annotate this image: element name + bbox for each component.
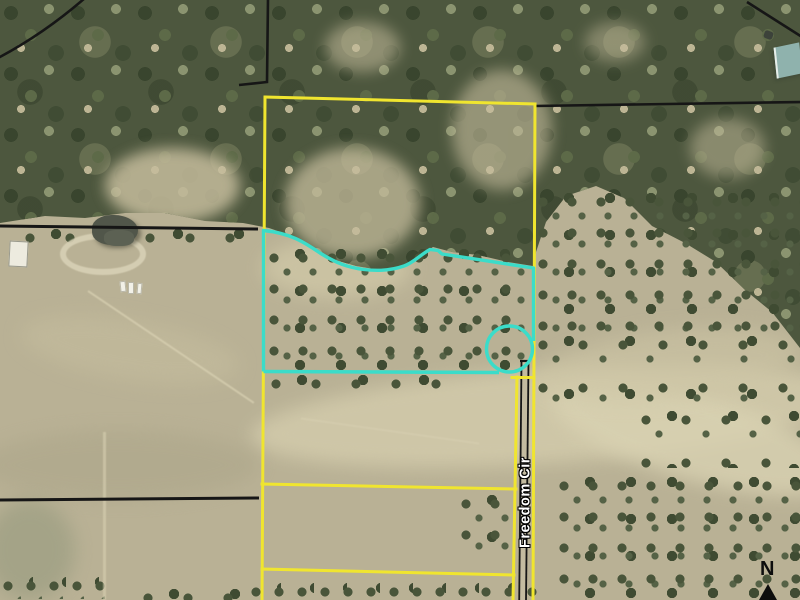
road-label: Freedom Cir [518, 447, 535, 559]
boundary-overlay [0, 0, 800, 600]
aerial-map: Freedom Cir N [0, 0, 800, 600]
culdesac-circle [487, 326, 533, 372]
road-line-topleft [0, 0, 85, 58]
north-label: N [760, 558, 774, 581]
highlighted-parcel-boundary [264, 231, 534, 373]
section-line [0, 226, 258, 229]
section-line [534, 102, 800, 106]
north-arrowhead-icon [759, 584, 777, 600]
north-arrow: N [756, 558, 792, 600]
section-lines [0, 0, 800, 500]
lot-line [262, 484, 516, 489]
section-line [0, 498, 259, 500]
highlight-outline [264, 231, 534, 372]
parcel-lines [262, 97, 535, 600]
section-line [239, 0, 268, 85]
highlight-south-line [264, 372, 500, 373]
lot-line [262, 569, 514, 575]
parcel-line-north [265, 97, 535, 104]
road-line-topright [747, 2, 800, 37]
